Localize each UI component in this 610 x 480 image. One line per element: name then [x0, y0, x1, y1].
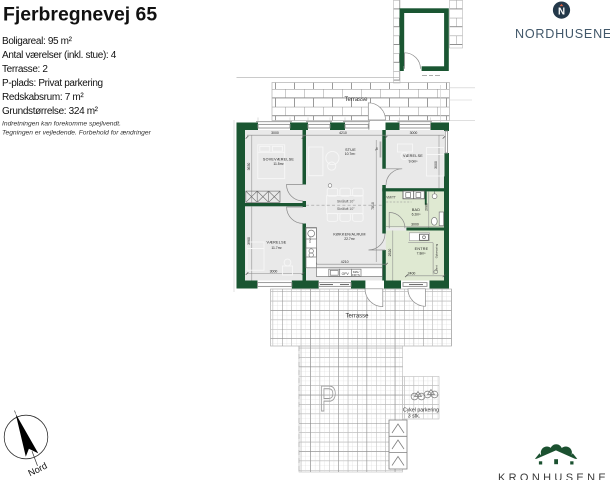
- svg-text:NORDHUSENE: NORDHUSENE: [515, 27, 610, 41]
- svg-text:3 stk.: 3 stk.: [408, 414, 420, 420]
- svg-text:Skråluft 10°: Skråluft 10°: [337, 207, 355, 211]
- svg-text:Skråluft 10°: Skråluft 10°: [337, 199, 355, 203]
- svg-text:3000: 3000: [411, 222, 419, 226]
- svg-text:Terrasse: 2: Terrasse: 2: [2, 64, 48, 75]
- svg-text:4210: 4210: [341, 260, 349, 264]
- svg-text:P-plads: Privat parkering: P-plads: Privat parkering: [2, 78, 103, 89]
- svg-text:6.2m²: 6.2m²: [412, 213, 422, 217]
- svg-text:VÆRELSE: VÆRELSE: [403, 154, 423, 158]
- svg-text:22.7m²: 22.7m²: [344, 237, 355, 241]
- svg-text:Vent: Vent: [435, 265, 439, 271]
- svg-text:N: N: [558, 6, 565, 17]
- svg-text:4210: 4210: [339, 131, 347, 135]
- svg-text:Tv: Tv: [375, 147, 379, 151]
- svg-text:VÆRELSE: VÆRELSE: [267, 241, 287, 245]
- svg-text:Tegningen er vejledende. Forbe: Tegningen er vejledende. Forbehold for æ…: [2, 130, 152, 137]
- svg-text:Nord: Nord: [26, 461, 48, 479]
- svg-text:KØKKEN/ALRUM: KØKKEN/ALRUM: [333, 232, 365, 236]
- svg-text:3000: 3000: [270, 270, 278, 274]
- svg-text:3000: 3000: [434, 161, 438, 169]
- svg-text:3630: 3630: [247, 163, 251, 171]
- svg-text:BAD: BAD: [412, 208, 420, 212]
- svg-text:11.7m²: 11.7m²: [271, 246, 282, 250]
- svg-text:2080: 2080: [424, 203, 428, 211]
- svg-text:2400: 2400: [408, 271, 416, 275]
- svg-text:Boligareal: 95 m²: Boligareal: 95 m²: [2, 36, 73, 47]
- svg-text:3000: 3000: [410, 131, 418, 135]
- svg-text:Redskabsrum: 7 m²: Redskabsrum: 7 m²: [2, 92, 84, 103]
- svg-text:9.0m²: 9.0m²: [409, 159, 419, 163]
- svg-text:3000: 3000: [271, 131, 279, 135]
- svg-text:Opbevaring: Opbevaring: [435, 243, 439, 258]
- svg-text:7.8m²: 7.8m²: [417, 251, 427, 255]
- svg-text:10.7m²: 10.7m²: [345, 152, 356, 156]
- svg-text:Indretningen kan forekomme spe: Indretningen kan forekomme spejlvendt.: [2, 121, 121, 128]
- svg-text:VM/TT: VM/TT: [386, 195, 396, 199]
- svg-text:Terrasse: Terrasse: [344, 97, 368, 103]
- svg-text:OPV: OPV: [342, 272, 350, 276]
- svg-text:11.5m²: 11.5m²: [273, 162, 284, 166]
- svg-text:Ovn: Ovn: [308, 237, 312, 243]
- svg-text:ENTRE: ENTRE: [415, 247, 429, 251]
- svg-text:P: P: [319, 379, 336, 419]
- svg-text:Terrasse: Terrasse: [345, 314, 369, 320]
- svg-text:3960: 3960: [247, 237, 251, 245]
- svg-text:Antal værelser (inkl. stue): 4: Antal værelser (inkl. stue): 4: [2, 50, 117, 61]
- svg-text:7810: 7810: [371, 202, 375, 210]
- svg-text:Grundstørrelse: 324 m²: Grundstørrelse: 324 m²: [2, 106, 99, 117]
- svg-text:2520: 2520: [388, 249, 392, 257]
- svg-text:Fjerbregnevej 65: Fjerbregnevej 65: [3, 4, 157, 26]
- svg-text:KRONHUSENE: KRONHUSENE: [498, 472, 609, 480]
- svg-text:FRYS: FRYS: [352, 273, 360, 277]
